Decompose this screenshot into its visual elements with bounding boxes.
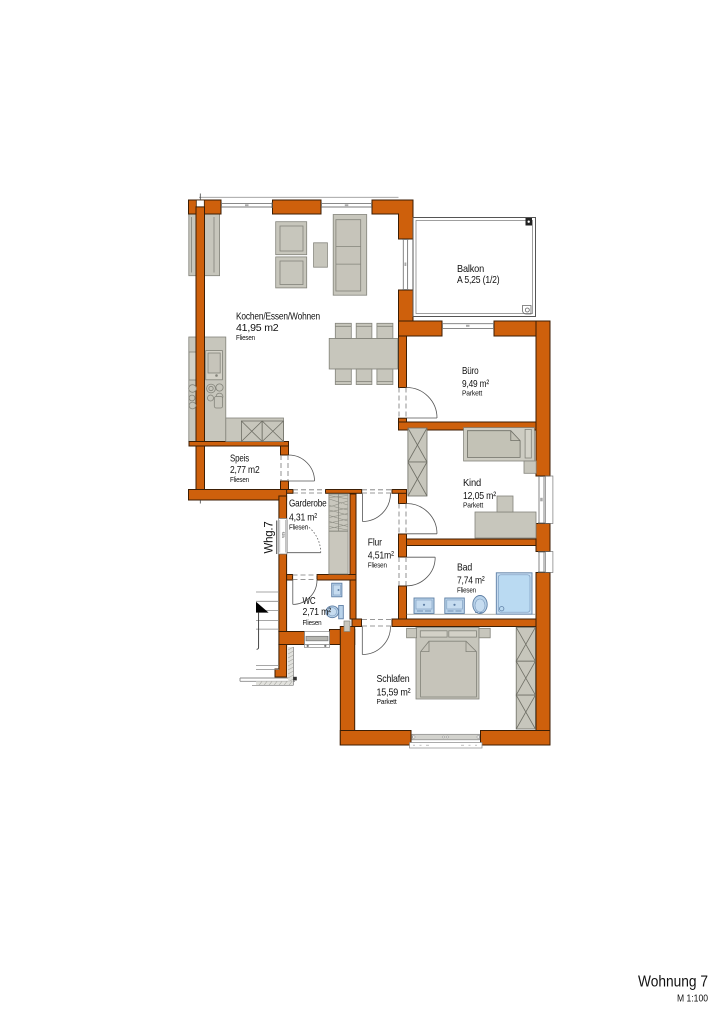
svg-text:Fliesen: Fliesen <box>368 561 387 570</box>
svg-text:Balkon: Balkon <box>457 264 484 275</box>
svg-text:Schlafen: Schlafen <box>377 674 410 685</box>
svg-text:M 1:100: M 1:100 <box>677 994 708 1005</box>
svg-text:Fliesen: Fliesen <box>457 586 476 595</box>
svg-text:Fliesen: Fliesen <box>230 475 249 484</box>
svg-text:Fliesen: Fliesen <box>303 618 322 627</box>
svg-text:A 5,25 (1/2): A 5,25 (1/2) <box>457 275 500 286</box>
svg-text:Whg.7: Whg.7 <box>264 522 276 554</box>
svg-text:Speis: Speis <box>230 454 249 465</box>
svg-text:Flur: Flur <box>368 538 383 549</box>
svg-text:Kochen/Essen/Wohnen: Kochen/Essen/Wohnen <box>236 311 320 322</box>
svg-text:Parkett: Parkett <box>377 697 397 706</box>
svg-text:VdS: VdS <box>281 532 285 538</box>
svg-text:Fliesen: Fliesen <box>236 333 255 342</box>
svg-text:Kind: Kind <box>463 478 481 489</box>
svg-text:Bad: Bad <box>457 563 472 574</box>
svg-text:Fliesen: Fliesen <box>289 523 308 532</box>
svg-text:Parkett: Parkett <box>463 501 483 510</box>
svg-text:Garderobe: Garderobe <box>289 499 327 510</box>
svg-text:Büro: Büro <box>462 366 479 377</box>
svg-text:2,71 m²: 2,71 m² <box>303 607 332 618</box>
svg-text:Wohnung 7: Wohnung 7 <box>638 974 708 991</box>
svg-text:Parkett: Parkett <box>462 389 482 398</box>
svg-text:WC: WC <box>303 596 317 607</box>
